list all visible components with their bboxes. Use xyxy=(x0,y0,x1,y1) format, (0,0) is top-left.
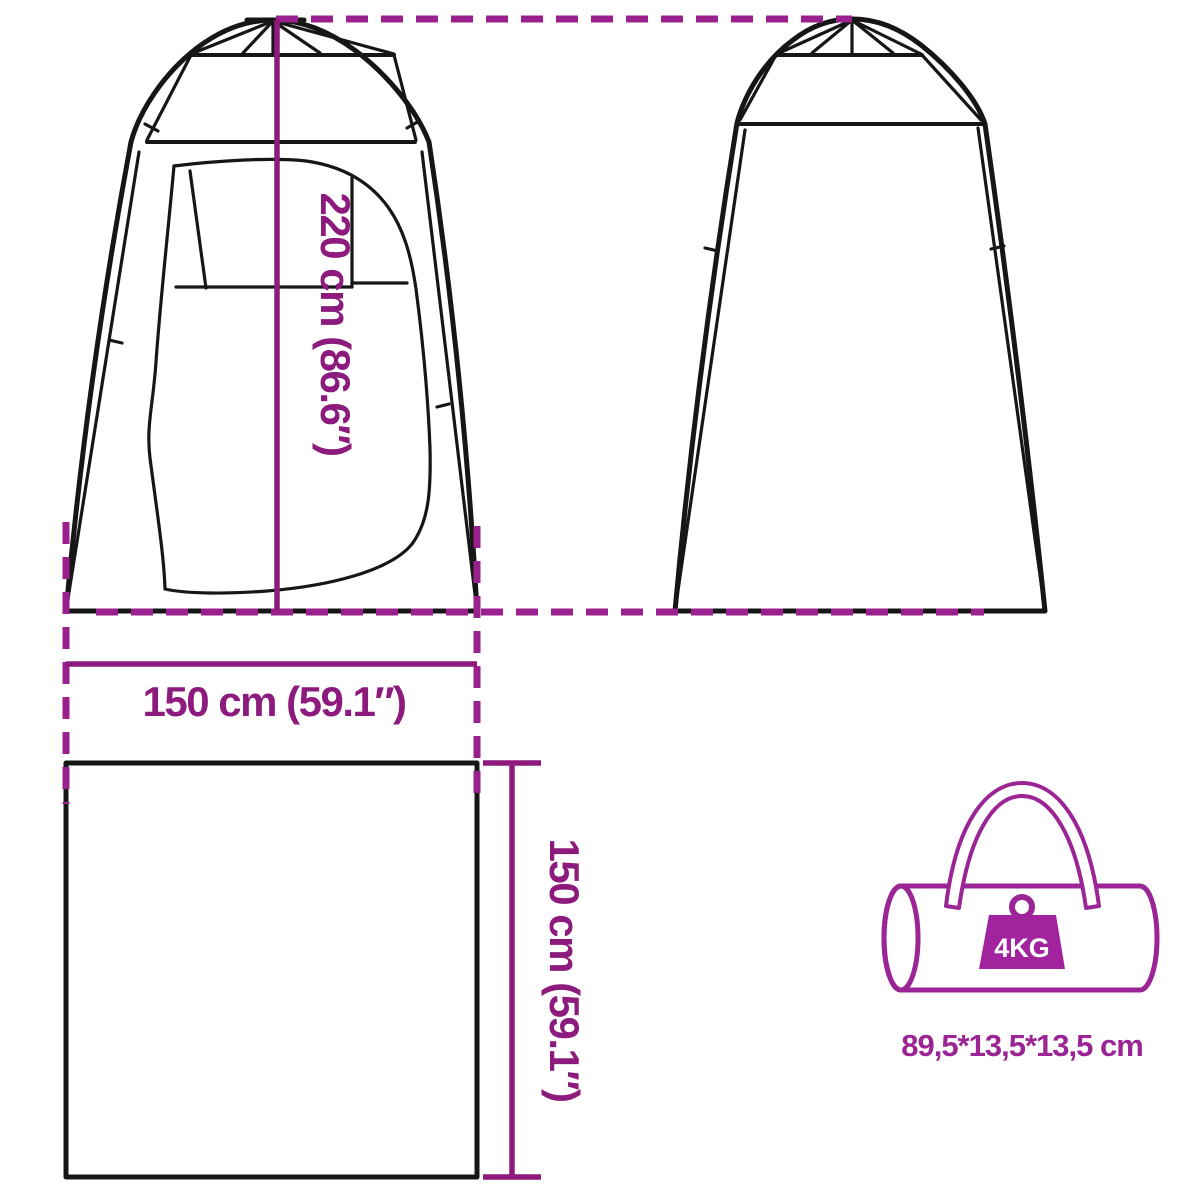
tent-front-curtain-fold xyxy=(190,171,206,288)
depth-dimension: 150 cm (59.1″) xyxy=(483,763,588,1177)
depth-dimension-label: 150 cm (59.1″) xyxy=(541,839,588,1102)
tent-back-outline xyxy=(675,19,1045,611)
carry-bag-icon: 4KG 89,5*13,5*13,5 cm xyxy=(884,783,1157,1063)
tent-front-door-left-edge xyxy=(149,166,174,589)
depth-dimension-line xyxy=(483,763,541,1177)
tent-front-outline xyxy=(66,20,477,611)
tent-back-left-pole xyxy=(675,130,745,611)
tent-back-view-icon xyxy=(675,19,1045,611)
tent-front-roof-spokes xyxy=(191,21,394,55)
tent-front-left-pole xyxy=(66,152,139,611)
height-dimension: 220 cm (86.6″) xyxy=(277,20,359,611)
width-dimension-label: 150 cm (59.1″) xyxy=(143,678,406,725)
tent-front-view-icon xyxy=(66,20,477,611)
width-dimension: 150 cm (59.1″) xyxy=(66,664,477,725)
product-dimension-diagram: 220 cm (86.6″) 150 cm (59.1″) 150 cm (59… xyxy=(0,0,1200,1200)
tent-front-right-pole xyxy=(422,152,477,611)
tent-front-door-outline xyxy=(165,159,430,593)
weight-ring xyxy=(1012,897,1032,917)
bag-size-label: 89,5*13,5*13,5 cm xyxy=(901,1028,1143,1063)
tent-back-right-pole xyxy=(978,128,1045,611)
floor-plan-square-icon xyxy=(66,763,477,1177)
diagram-canvas: 220 cm (86.6″) 150 cm (59.1″) 150 cm (59… xyxy=(0,0,1200,1200)
weight-label: 4KG xyxy=(994,933,1050,963)
tent-back-pole-joints xyxy=(705,246,1004,251)
height-dimension-label: 220 cm (86.6″) xyxy=(312,193,359,456)
tent-front-window-sill xyxy=(176,283,407,287)
